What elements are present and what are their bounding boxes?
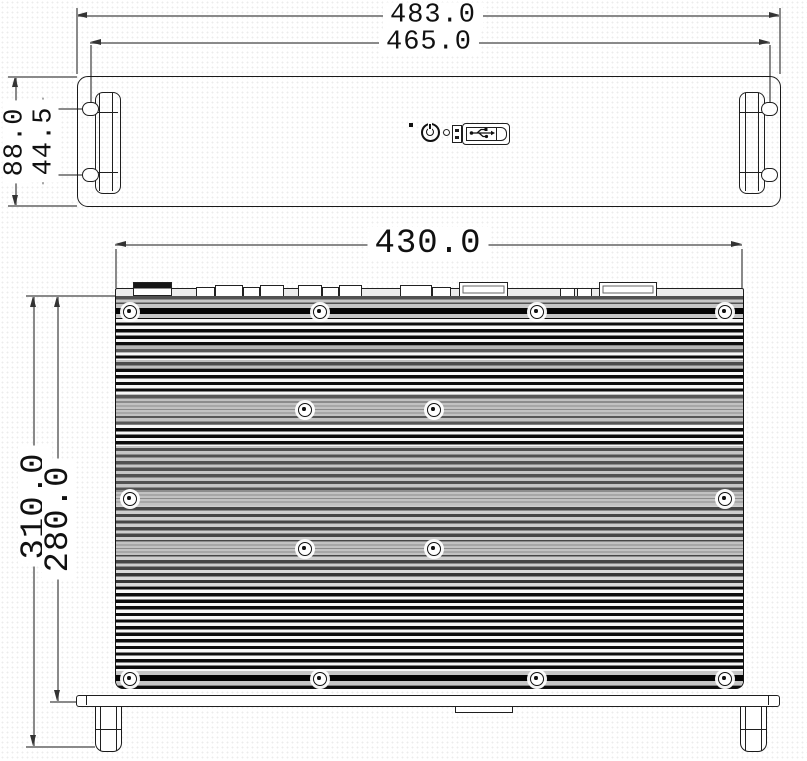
heatsink-fins (115, 296, 744, 689)
dim-label-overall-height: 88.0 (3, 101, 30, 184)
usb-symbol-icon (469, 127, 495, 139)
dim-arrow-icon (90, 39, 101, 45)
led-indicator (443, 129, 450, 136)
power-button-icon[interactable] (421, 123, 440, 142)
mounting-slot-icon (761, 102, 778, 116)
foot-inner-line (116, 705, 117, 751)
ear-inner-line (740, 172, 762, 173)
rear-connector (133, 282, 172, 296)
extension-line (779, 8, 781, 74)
ear-inner-line (758, 93, 759, 191)
screw-rail (116, 491, 743, 505)
dim-arrow-icon (76, 12, 87, 18)
connector-pin (455, 136, 459, 139)
fin-shade-band (116, 570, 743, 586)
foot-inner-line (96, 729, 121, 730)
fin-shade-band (116, 360, 743, 369)
chassis-foot-right (740, 705, 767, 752)
screw-icon (123, 492, 137, 506)
extension-line (26, 746, 95, 748)
extension-line (50, 701, 77, 703)
dim-arrow-icon (54, 690, 60, 701)
dim-label-slot-spacing: 44.5 (32, 100, 59, 183)
extension-line (76, 8, 78, 74)
led-indicator (409, 123, 413, 127)
base-plate (76, 695, 780, 707)
rear-connector (459, 282, 508, 297)
screw-icon (718, 492, 732, 506)
fin-shade-band (116, 345, 743, 353)
extension-line (8, 205, 77, 207)
mini-connector-icon (452, 125, 462, 143)
dim-label-overall-width: 483.0 (383, 3, 483, 30)
screw-icon (298, 403, 312, 417)
screw-icon (530, 672, 544, 686)
usb-port-cap (496, 127, 507, 141)
screw-rail-bar (116, 675, 743, 681)
screw-icon (123, 305, 137, 319)
mounting-slot-icon (82, 102, 99, 116)
screw-icon (123, 672, 137, 686)
foot-inner-line (100, 705, 101, 751)
ear-inner-line (96, 172, 118, 173)
ear-inner-line (96, 112, 118, 113)
screw-icon (530, 305, 544, 319)
extension-line (115, 249, 117, 288)
dim-arrow-icon (54, 296, 60, 307)
dim-arrow-icon (30, 296, 36, 307)
mounting-slot-icon (761, 168, 778, 182)
ear-inner-line (112, 93, 113, 191)
rear-connector (599, 282, 657, 297)
dim-arrow-icon (30, 735, 36, 746)
power-symbol-icon (426, 128, 434, 136)
dim-arrow-icon (12, 76, 18, 87)
screw-icon (313, 672, 327, 686)
extension-line (26, 295, 115, 297)
dim-label-mount-width: 465.0 (379, 30, 479, 57)
dim-arrow-icon (115, 241, 126, 247)
ear-inner-line (740, 112, 762, 113)
mounting-slot-icon (82, 168, 99, 182)
foot-inner-line (741, 729, 766, 730)
screw-icon (313, 305, 327, 319)
base-plate-tick (768, 696, 769, 705)
screw-icon (718, 672, 732, 686)
dim-label-body-width: 430.0 (367, 227, 488, 261)
screw-icon (427, 542, 441, 556)
extension-line (741, 249, 743, 288)
screw-rail-bar (116, 308, 743, 314)
connector-pin (455, 129, 459, 132)
foot-inner-line (745, 705, 746, 751)
screw-icon (298, 542, 312, 556)
dim-arrow-icon (759, 39, 770, 45)
base-plate-tick (86, 696, 87, 705)
ear-inner-line (99, 93, 100, 191)
extension-line (8, 76, 77, 78)
technical-drawing: 483.0 465.0 88.0 44.5 (0, 0, 807, 761)
dim-label-body-depth: 280.0 (42, 458, 76, 579)
screw-icon (427, 403, 441, 417)
ear-inner-line (745, 93, 746, 191)
dim-arrow-icon (731, 241, 742, 247)
power-symbol-stem (429, 124, 431, 129)
screw-icon (718, 305, 732, 319)
fin-shade-band (116, 506, 743, 570)
foot-inner-line (761, 705, 762, 751)
chassis-foot-left (95, 705, 122, 752)
